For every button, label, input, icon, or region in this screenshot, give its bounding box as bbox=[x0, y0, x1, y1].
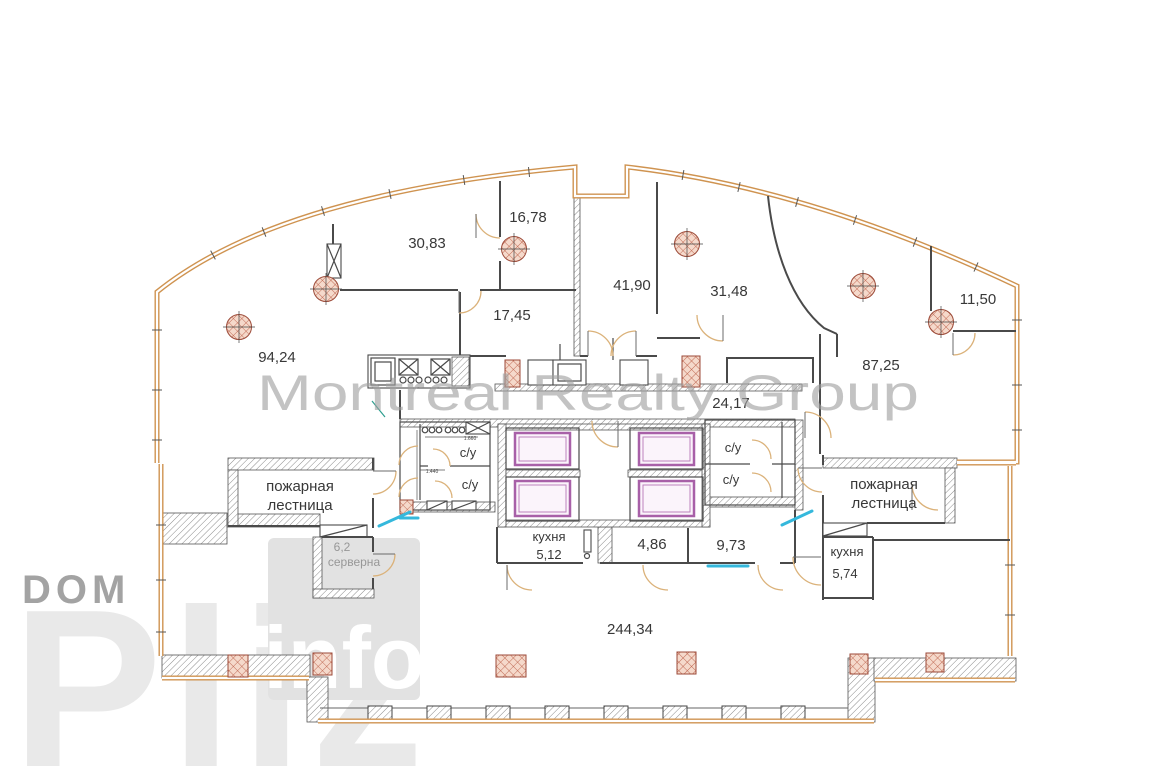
server-area-label: 6,2 bbox=[334, 540, 351, 554]
dim-label-a: 1.660 bbox=[464, 436, 477, 442]
area-label-17: 17,45 bbox=[493, 307, 531, 324]
dim-label-b: 1.440 bbox=[426, 469, 439, 475]
server-name-label: серверна bbox=[328, 555, 381, 569]
wc-label-left-top: с/у bbox=[460, 445, 477, 460]
kitchen-right-label: кухня bbox=[830, 544, 863, 559]
wc-label-left-bottom: с/у bbox=[462, 477, 479, 492]
fire-stairs-left-line1: пожарная bbox=[266, 478, 334, 495]
kitchen-left-area: 5,12 bbox=[536, 547, 561, 562]
area-label-9: 9,73 bbox=[716, 537, 745, 554]
kitchen-left-label: кухня bbox=[532, 529, 565, 544]
wc-label-right-bottom: с/у bbox=[723, 472, 740, 487]
kitchen-right-area: 5,74 bbox=[832, 566, 857, 581]
fire-stairs-right-line1: пожарная bbox=[850, 476, 918, 493]
floor-plan-drawing: DOM Pliz info bbox=[0, 0, 1166, 768]
area-label-94: 94,24 bbox=[258, 349, 296, 366]
area-label-16: 16,78 bbox=[509, 209, 547, 226]
wc-label-right-top: с/у bbox=[725, 440, 742, 455]
area-label-31: 31,48 bbox=[710, 283, 748, 300]
fire-stairs-left-line2: лестница bbox=[267, 497, 333, 514]
watermark-center-text: Montreal Realty Group bbox=[257, 365, 919, 421]
area-label-30: 30,83 bbox=[408, 235, 446, 252]
area-label-244: 244,34 bbox=[607, 621, 653, 638]
area-label-4: 4,86 bbox=[637, 536, 666, 553]
area-label-11: 11,50 bbox=[960, 291, 996, 308]
fire-stairs-right-line2: лестница bbox=[851, 495, 917, 512]
floor-plan-canvas: DOM Pliz info bbox=[0, 0, 1166, 768]
area-label-41: 41,90 bbox=[613, 277, 651, 294]
watermark-logo: DOM Pliz info bbox=[12, 538, 432, 768]
